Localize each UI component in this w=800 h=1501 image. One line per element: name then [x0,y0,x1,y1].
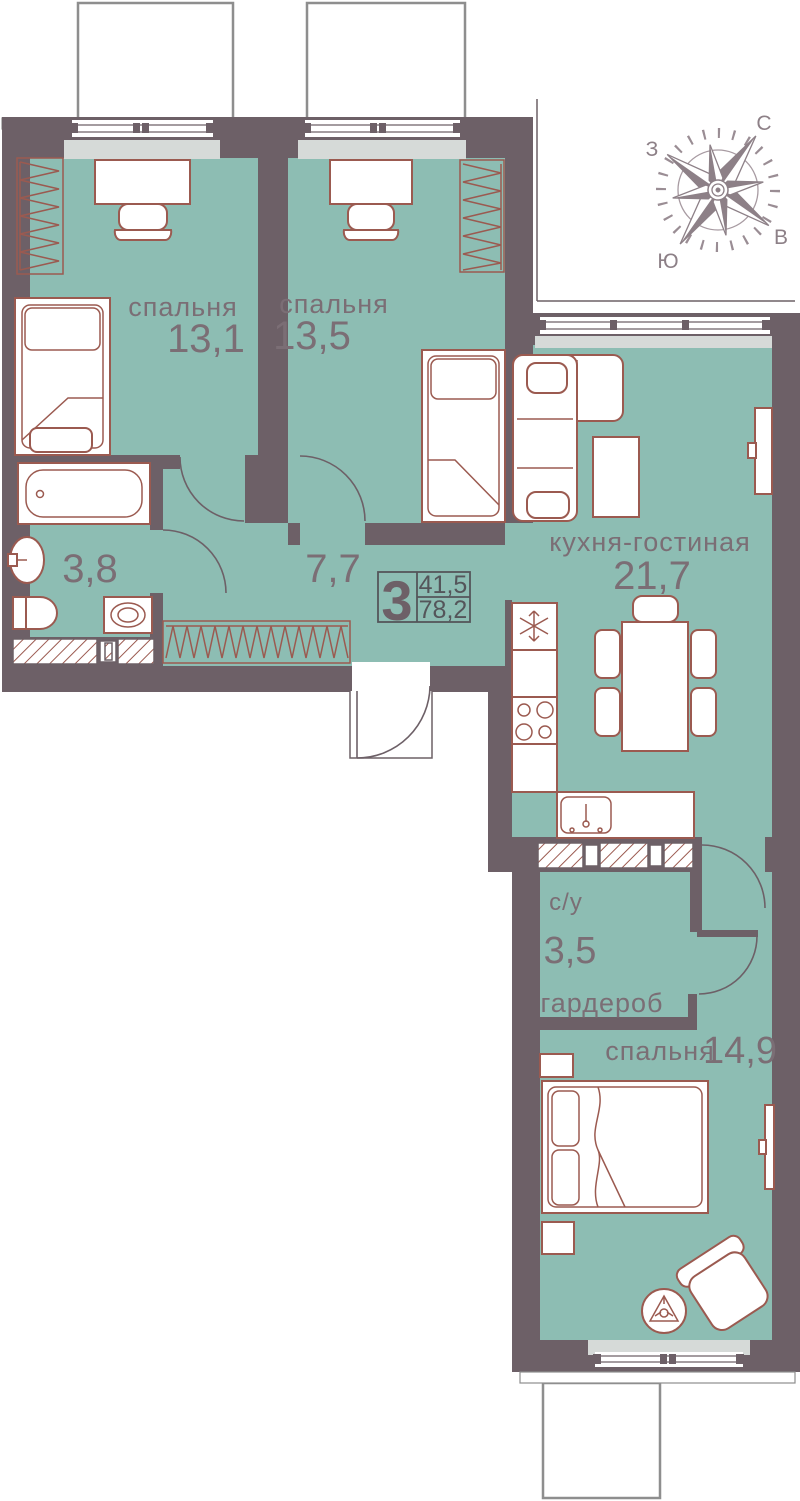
exterior-ledge-bottom [520,1372,795,1383]
wall-kitchen-left [488,690,512,872]
wall-bedrooms-corner [245,455,288,523]
shaft-su-3 [664,843,693,868]
nightstand-1 [540,1054,573,1077]
balcony-top-right [307,3,465,122]
toilet [13,597,57,629]
badge-living-area: 41,5 [419,571,468,599]
shaft-bathroom-small-hatch [105,643,112,660]
balcony-top-left [78,3,233,122]
floor-passage [505,523,533,600]
label-bedroom3-area: 14,9 [703,1030,777,1072]
wall-bedroom2-bottom-a [288,523,300,545]
chair-base-bedroom2 [344,230,398,240]
shaft-bathroom-1 [13,639,97,664]
wall-su-right [690,872,702,932]
nightstand-2 [542,1222,574,1254]
compass-west-label: З [646,138,659,161]
label-su-area: 3,5 [544,930,597,972]
shaft-su-small-2 [650,845,662,866]
shaft-su-1 [538,843,583,868]
label-bathroom-area: 3,8 [62,547,118,591]
bathtub [18,463,150,524]
label-hallway-area: 7,7 [305,547,361,591]
wall-bedroom2-bottom-b [365,523,505,545]
dining-chair-right-2 [691,688,716,736]
floor-plant [642,1289,686,1333]
sofa-cushion-top [527,363,567,393]
bed-bedroom1 [15,298,110,455]
dining-chair-left-1 [595,630,620,678]
label-bedroom3-name: спальня [605,1036,715,1066]
badge-total-area: 78,2 [419,596,468,624]
sofa-cushion-bottom [527,492,569,518]
label-kitchen-name: кухня-гостиная [549,527,750,557]
floor-corridor-opening [702,837,765,872]
chair-bedroom1 [119,204,167,230]
entrance-door [350,662,432,758]
stove [512,697,557,744]
badge-rooms-count: 3 [381,569,412,632]
wall-bathroom-right-a [150,469,163,530]
shaft-su-2 [600,843,648,868]
shaft-su-small-1 [585,845,598,866]
balcony-bottom [543,1383,660,1498]
washing-machine [104,597,152,633]
bed-bedroom3 [542,1081,708,1213]
desk-bedroom1 [95,160,190,204]
info-badge: 3 41,5 78,2 [378,569,470,632]
shaft-bathroom-2 [118,639,154,664]
compass-south-label: Ю [657,250,678,273]
label-kitchen-area: 21,7 [613,554,691,598]
wall-wardrobe-partition [697,930,758,937]
bed-foot-bedroom1 [30,428,92,452]
fridge [512,603,557,650]
desk-bedroom2 [330,160,412,204]
compass-east-label: В [774,226,788,249]
dining-chair-head [633,596,678,622]
label-bedroom2-area: 13,5 [273,314,351,358]
chair-base-bedroom1 [115,230,171,240]
bed-bedroom2 [422,350,505,522]
compass-north-label: С [756,112,771,135]
coffee-table [593,437,639,517]
chair-bedroom2 [348,204,394,230]
dining-chair-right-1 [691,630,716,678]
dining-table [622,622,688,751]
window-kitchen [535,317,772,348]
kitchen-sink-counter [557,792,694,838]
floor-plan-svg: спальня 13,1 спальня 13,5 7,7 3,8 кухня-… [0,0,800,1501]
compass-rose: С В Ю З [627,99,800,282]
kitchen-counter-1 [512,650,557,697]
label-bedroom1-area: 13,1 [167,317,245,361]
dining-chair-left-2 [595,688,620,736]
kitchen-counter-2 [512,744,557,792]
wall-wardrobe-bottom [540,1017,697,1030]
label-su-name: с/у [549,889,583,916]
floor-plan-page: спальня 13,1 спальня 13,5 7,7 3,8 кухня-… [0,0,800,1501]
label-wardrobe-name: гардероб [541,988,664,1018]
